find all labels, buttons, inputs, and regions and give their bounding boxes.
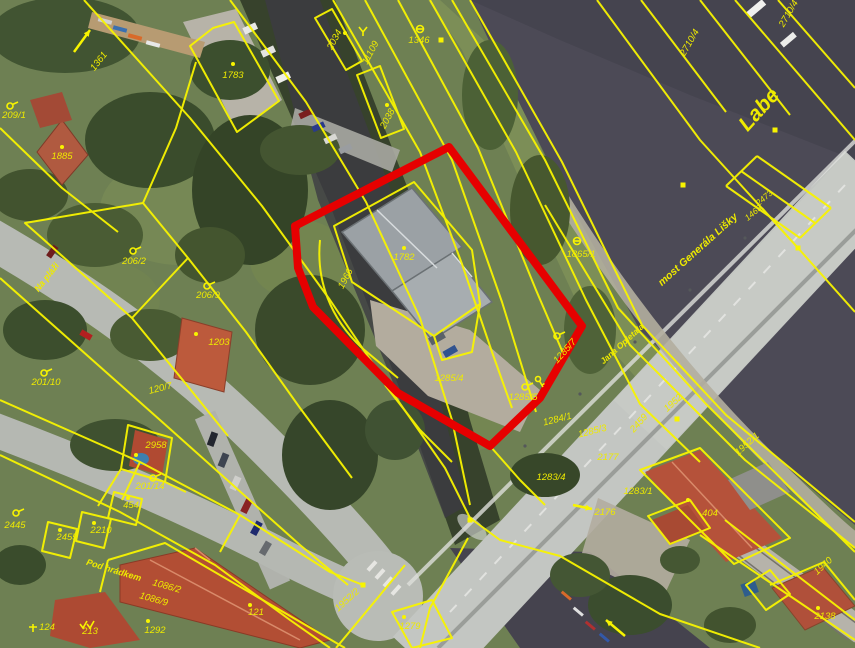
tree-canopy (282, 400, 378, 510)
parcel-number-label: 1865/1 (566, 249, 595, 260)
parcel-center-dot (60, 145, 64, 149)
tree-canopy (3, 300, 87, 360)
parcel-number-label: 1279 (399, 621, 421, 632)
parcel-number-label: 1283/1 (623, 486, 652, 497)
parcel-number-label: 1885 (51, 151, 73, 162)
line-vertex-marker (675, 417, 680, 422)
tree-canopy (260, 125, 340, 175)
parcel-number-label: 2455 (55, 532, 78, 543)
parcel-number-label: 2445 (3, 520, 26, 531)
parcel-number-label: 124 (39, 622, 55, 633)
parcel-number-label: 2177 (596, 452, 619, 463)
parcel-number-label: 1783 (222, 70, 244, 81)
line-vertex-marker (468, 518, 473, 523)
parcel-center-dot (402, 615, 406, 619)
parcel-center-dot (402, 246, 406, 250)
tree-canopy (365, 400, 425, 460)
map-viewport[interactable]: 203411109134617831361209/118852710/42710… (0, 0, 855, 648)
parcel-number-label: 1346 (408, 35, 430, 46)
parcel-number-label: 454 (123, 500, 139, 511)
parcel-number-label: 2138 (813, 611, 836, 622)
parcel-number-label: 201/14 (134, 481, 164, 492)
parcel-number-label: 404 (702, 508, 718, 519)
parcel-number-label: 206/2 (121, 256, 146, 267)
parcel-number-label: 1203 (208, 337, 230, 348)
parcel-center-dot (146, 619, 150, 623)
parcel-center-dot (194, 332, 198, 336)
tree-canopy (660, 546, 700, 574)
cadastral-map-canvas[interactable]: 203411109134617831361209/118852710/42710… (0, 0, 855, 648)
parcel-center-dot (816, 606, 820, 610)
parcel-center-dot (686, 498, 690, 502)
parcel-number-label: 2176 (593, 507, 616, 518)
parcel-number-label: 1285/5 (508, 392, 538, 403)
parcel-number-label: 2958 (144, 440, 167, 451)
parcel-center-dot (231, 62, 235, 66)
parcel-number-label: 1782 (393, 252, 415, 263)
parcel-number-label: 206/9 (195, 290, 220, 301)
line-vertex-marker (796, 246, 801, 251)
line-vertex-marker (439, 38, 444, 43)
parcel-number-label: 213 (81, 626, 99, 637)
parcel-number-label: 201/10 (30, 377, 61, 388)
line-vertex-marker (681, 183, 686, 188)
parcel-number-label: 1292 (144, 625, 166, 636)
parcel-center-dot (385, 103, 389, 107)
parcel-center-dot (134, 453, 138, 457)
parcel-number-label: 2210 (89, 525, 112, 536)
parcel-number-label: 209/1 (1, 110, 26, 121)
parcel-number-label: 121 (248, 607, 264, 618)
tree-canopy (550, 553, 610, 597)
parcel-number-label: 1285/4 (434, 373, 463, 384)
line-vertex-marker (361, 583, 366, 588)
parcel-number-label: 1283/4 (536, 472, 565, 483)
line-vertex-marker (773, 128, 778, 133)
